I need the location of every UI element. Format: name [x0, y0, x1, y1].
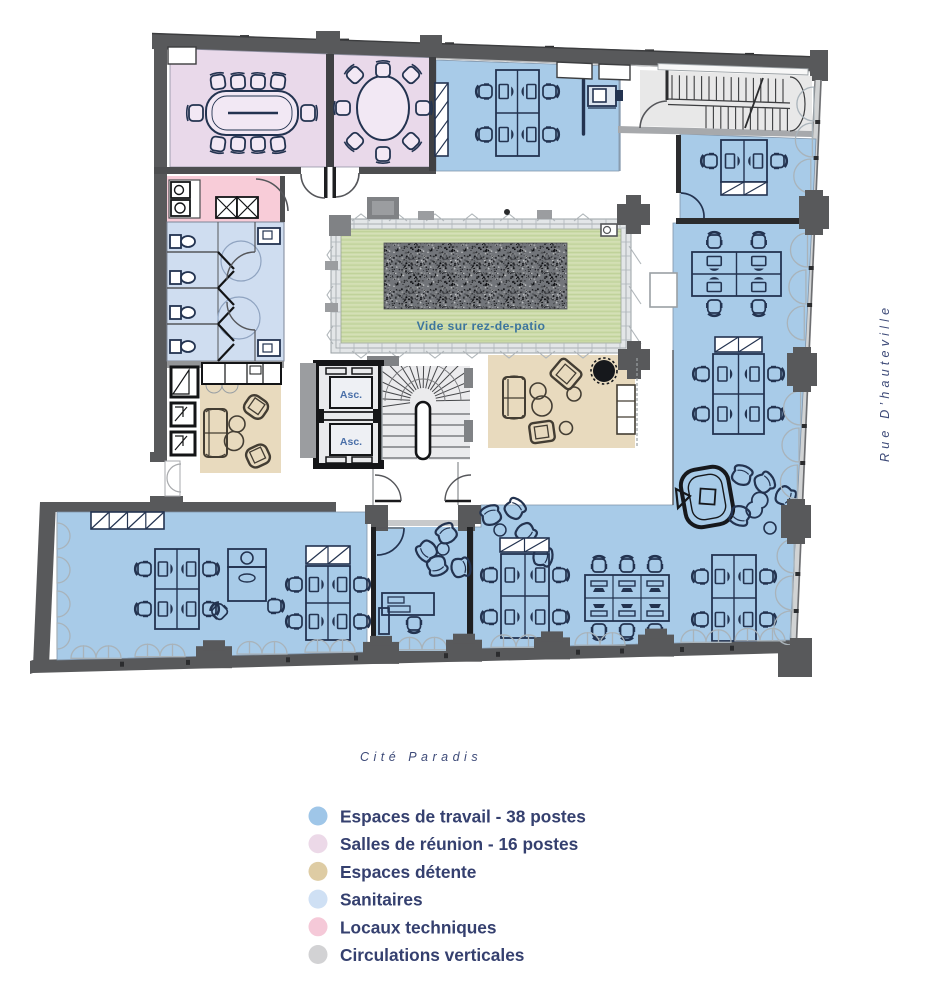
svg-text:Cité Paradis: Cité Paradis [360, 750, 482, 764]
svg-text:Espaces de travail - 38 postes: Espaces de travail - 38 postes [340, 807, 586, 827]
svg-text:Circulations verticales: Circulations verticales [340, 945, 524, 965]
svg-text:Rue D’hauteville: Rue D’hauteville [878, 304, 892, 462]
svg-text:Asc.: Asc. [340, 389, 362, 401]
svg-text:Espaces détente: Espaces détente [340, 862, 477, 882]
svg-text:Asc.: Asc. [340, 436, 362, 448]
svg-text:Salles de réunion - 16 postes: Salles de réunion - 16 postes [340, 834, 578, 854]
svg-text:Vide sur rez-de-patio: Vide sur rez-de-patio [417, 319, 546, 333]
svg-text:Locaux techniques: Locaux techniques [340, 917, 497, 937]
svg-text:Sanitaires: Sanitaires [340, 890, 423, 910]
